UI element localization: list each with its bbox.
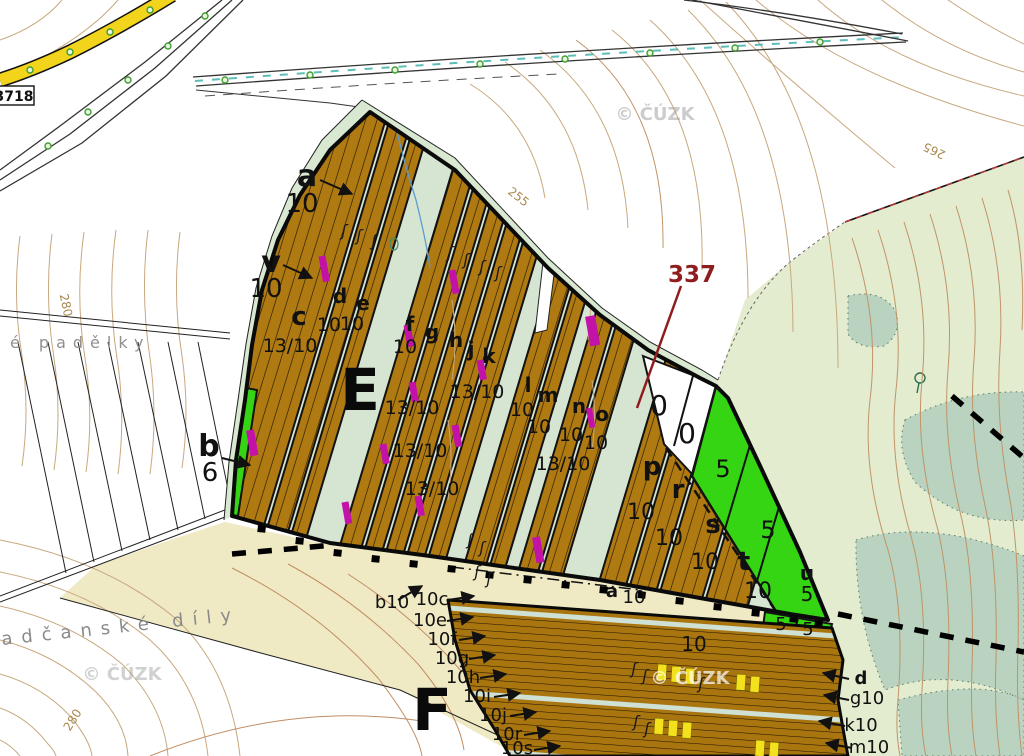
stand-value: 10: [655, 526, 683, 551]
stand-label-d2: d: [855, 668, 868, 689]
stand-marker-yellow: [654, 718, 664, 735]
boundary-tooth: [523, 576, 532, 584]
stand-value: 13/10: [450, 381, 505, 403]
clearing-value-5: 5: [801, 582, 814, 606]
stand-value: 10: [393, 336, 417, 358]
map-canvas: 3718: [0, 0, 1024, 756]
clearing-value-5: 5: [802, 619, 813, 640]
stand-value: 10: [527, 416, 551, 438]
stand-value-a: 10: [285, 189, 318, 219]
circle-shape: [147, 7, 153, 13]
stand-value-b: 6: [202, 458, 219, 488]
stand-marker-yellow: [668, 720, 678, 737]
circle-shape: [85, 109, 91, 115]
circle-shape: [732, 45, 738, 51]
boundary-tooth: [751, 609, 760, 617]
clearing-value-5: 5: [775, 614, 786, 635]
circle-shape: [125, 77, 131, 83]
boundary-tooth: [713, 603, 722, 611]
stand-label-g: g: [425, 320, 439, 344]
stand-value: 10: [317, 314, 341, 336]
stand-label-10g: 10g: [435, 648, 469, 669]
boundary-tooth: [333, 549, 342, 557]
boundary-tooth: [789, 615, 798, 623]
stand-value: 10: [584, 432, 608, 454]
stand-marker-yellow: [682, 722, 692, 739]
stand-label-n: n: [572, 394, 586, 418]
stand-marker-yellow: [755, 740, 765, 756]
stand-label-a2: a: [606, 581, 618, 602]
stand-label-c: c: [291, 302, 306, 332]
stand-label-10s: 10s: [501, 738, 533, 756]
stand-value: 10: [681, 632, 706, 656]
boundary-tooth: [447, 565, 456, 573]
circle-shape: [107, 29, 113, 35]
section-letter-f: F: [412, 676, 452, 744]
stand-label-10i: 10i: [463, 686, 491, 707]
stand-label-m: m: [538, 383, 559, 407]
boundary-tooth: [675, 597, 684, 605]
stand-value: 13/10: [263, 335, 318, 357]
stand-label-10j: 10j: [479, 705, 507, 726]
circle-shape: [307, 72, 313, 78]
stand-value: 10: [627, 500, 655, 525]
stand-value: 10: [559, 424, 583, 446]
stand-value-v: 10: [249, 274, 282, 304]
stand-value: 13/10: [405, 478, 460, 500]
stand-label-k: k: [482, 344, 496, 368]
stand-marker-yellow: [769, 742, 779, 756]
watermark: © ČÚZK: [650, 667, 730, 689]
road-sign-3718: 3718: [0, 86, 34, 105]
stand-label-m10: m10: [849, 737, 889, 756]
parcel-number-337: 337: [668, 262, 716, 288]
boundary-tooth: [814, 620, 823, 628]
boundary-tooth: [295, 537, 304, 545]
forestry-map: 3718: [0, 0, 1024, 756]
circle-shape: [165, 43, 171, 49]
stand-marker-yellow: [736, 674, 746, 691]
stand-label-10f: 10f: [427, 629, 457, 650]
stand-label-10e: 10e: [413, 610, 447, 631]
circle-shape: [817, 39, 823, 45]
stand-value: 13/10: [393, 440, 448, 462]
stand-label-g10: g10: [850, 688, 884, 709]
circle-shape: [27, 67, 33, 73]
circle-shape: [202, 13, 208, 19]
watermark: © ČÚZK: [82, 663, 162, 685]
stand-value: 10: [623, 587, 646, 608]
stand-value: 10: [744, 579, 772, 604]
stand-value: 13/10: [536, 453, 591, 475]
stand-value: 10: [340, 313, 364, 335]
circle-shape: [647, 50, 653, 56]
clearing-value-5: 5: [760, 516, 775, 544]
circle-shape: [45, 143, 51, 149]
circle-shape: [477, 61, 483, 67]
stand-label-l: l: [525, 373, 532, 397]
place-name-padelky: é padělky: [10, 333, 151, 352]
boundary-tooth: [561, 581, 570, 589]
stand-label-h: h: [449, 328, 463, 352]
stand-label-s: s: [705, 510, 720, 540]
stand-value: 10: [691, 550, 719, 575]
stand-label-r: r: [672, 475, 685, 505]
stand-value: 13/10: [385, 397, 440, 419]
stand-label-d: d: [333, 284, 347, 308]
circle-shape: [562, 56, 568, 62]
stand-label-o: o: [595, 402, 609, 426]
section-letter-e: E: [340, 356, 380, 424]
clearing-value-0: 0: [678, 417, 696, 450]
stand-label-e: e: [356, 291, 370, 315]
stand-label-f: f: [406, 312, 415, 336]
boundary-tooth: [409, 560, 418, 568]
boundary-tooth: [371, 555, 380, 563]
stand-label-10c: 10c: [416, 589, 449, 610]
clearing-value-5: 5: [715, 455, 730, 483]
stand-label-p: p: [643, 452, 662, 482]
stand-label-k10: k10: [844, 715, 877, 736]
stand-label-j: j: [467, 337, 475, 361]
stand-label-b10: b10: [375, 592, 409, 613]
stand-label-t: t: [738, 547, 750, 577]
circle-shape: [392, 67, 398, 73]
stand-marker-yellow: [750, 676, 760, 693]
clearing-value-0: 0: [650, 389, 668, 422]
circle-shape: [67, 49, 73, 55]
forest-dark-patch: [856, 532, 1024, 700]
boundary-tooth: [257, 525, 266, 533]
road-sign-label: 3718: [0, 89, 33, 105]
forest-dark-patch: [898, 689, 1024, 756]
watermark: © ČÚZK: [615, 103, 695, 125]
circle-shape: [222, 77, 228, 83]
